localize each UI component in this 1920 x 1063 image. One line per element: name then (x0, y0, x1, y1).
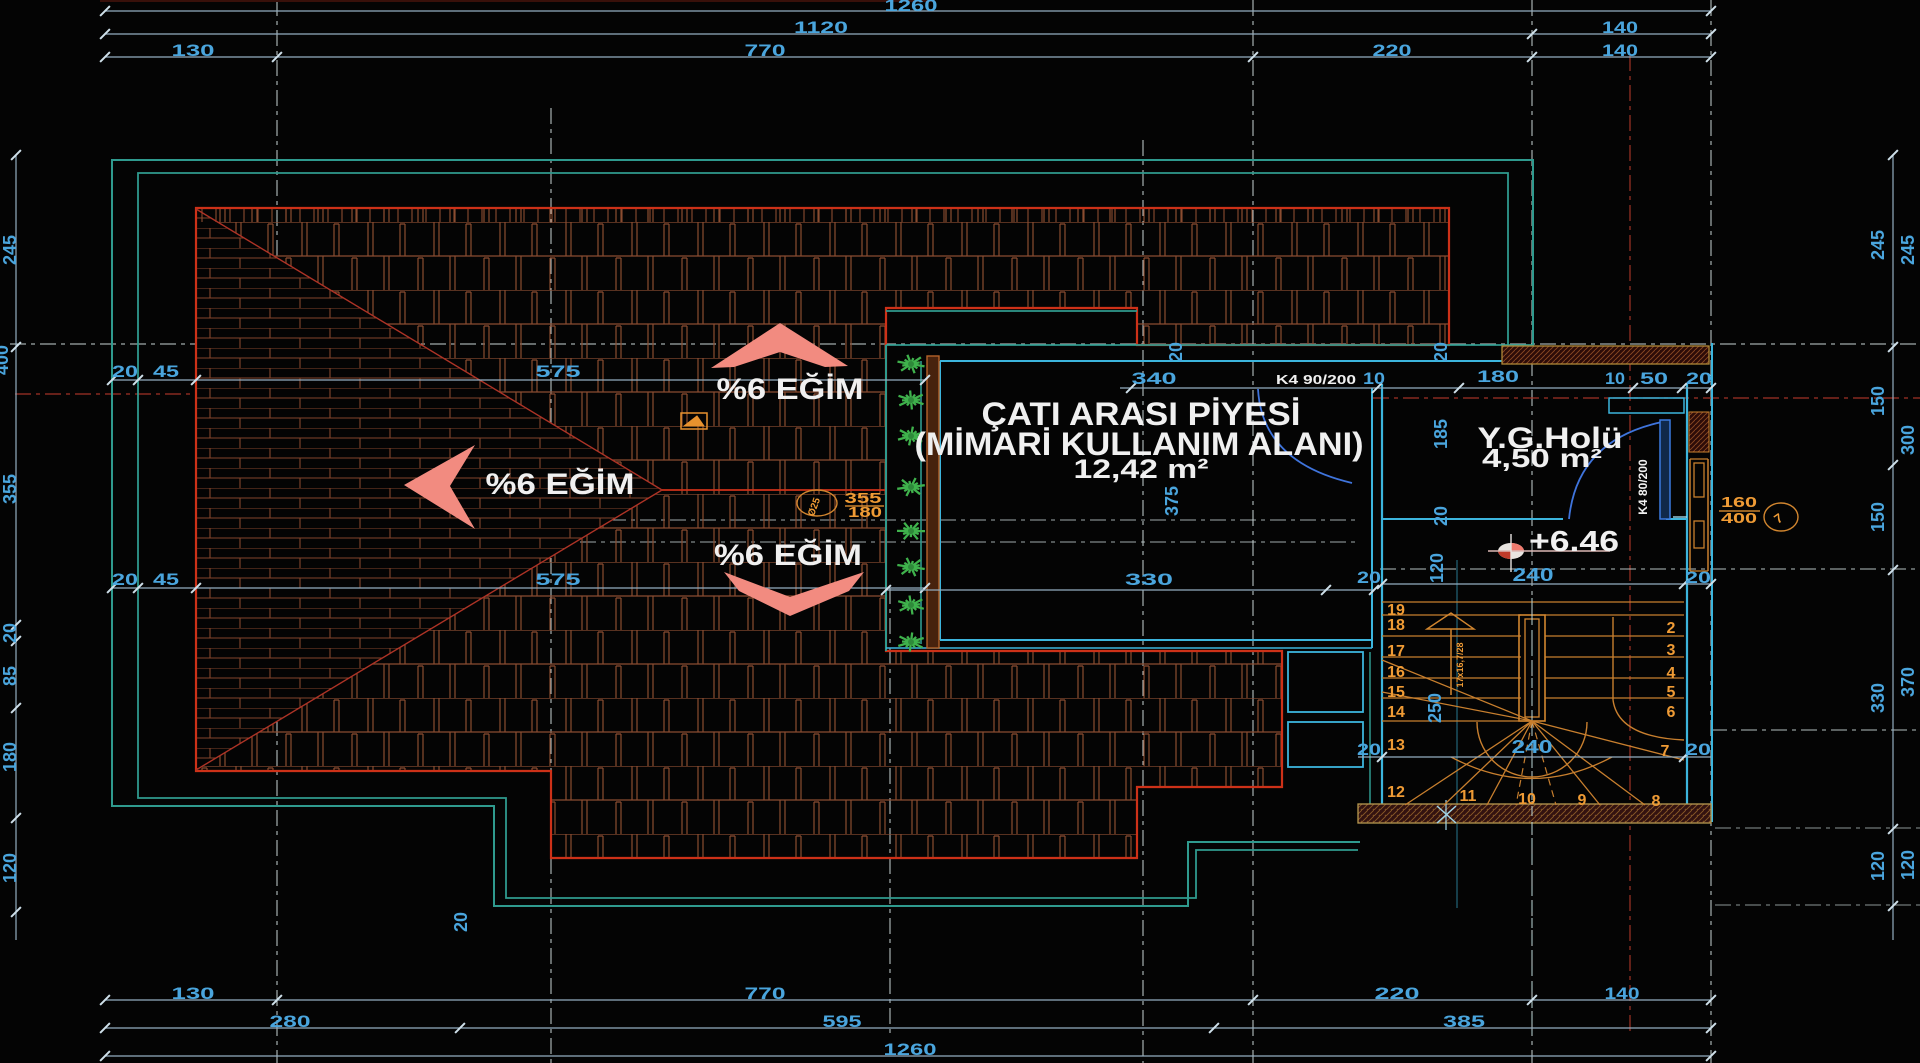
svg-text:20: 20 (112, 570, 138, 589)
svg-text:20: 20 (1431, 342, 1451, 362)
svg-text:240: 240 (1512, 737, 1553, 757)
svg-text:8: 8 (1652, 793, 1661, 810)
svg-text:770: 770 (745, 41, 786, 60)
svg-text:20: 20 (451, 912, 471, 932)
svg-text:K4 90/200: K4 90/200 (1276, 372, 1356, 387)
svg-text:20: 20 (0, 623, 20, 643)
svg-text:385: 385 (1443, 1012, 1485, 1031)
svg-text:140: 140 (1605, 984, 1640, 1003)
svg-text:85: 85 (0, 666, 20, 686)
svg-text:10: 10 (1605, 369, 1625, 388)
svg-text:10: 10 (1363, 369, 1385, 388)
svg-text:17x16,7/28: 17x16,7/28 (1455, 642, 1465, 687)
svg-text:4: 4 (1667, 665, 1676, 682)
svg-text:330: 330 (1125, 570, 1173, 589)
svg-text:355: 355 (0, 474, 20, 504)
svg-text:20: 20 (1166, 342, 1186, 362)
svg-text:12: 12 (1387, 784, 1405, 801)
svg-text:280: 280 (270, 1012, 311, 1031)
svg-text:17: 17 (1387, 643, 1405, 660)
svg-text:140: 140 (1602, 18, 1638, 37)
svg-text:375: 375 (1162, 486, 1182, 516)
svg-text:245: 245 (0, 235, 20, 265)
svg-text:9: 9 (1578, 792, 1587, 809)
svg-text:6: 6 (1667, 704, 1676, 721)
svg-text:%6 EĞİM: %6 EĞİM (714, 538, 862, 572)
svg-text:150: 150 (1868, 386, 1888, 416)
svg-text:185: 185 (1431, 419, 1451, 449)
svg-text:575: 575 (536, 570, 581, 589)
svg-text:20: 20 (1357, 740, 1381, 759)
svg-text:20: 20 (1686, 369, 1712, 388)
svg-text:240: 240 (1513, 565, 1554, 585)
svg-text:120: 120 (1427, 553, 1447, 583)
svg-text:16: 16 (1387, 664, 1405, 681)
svg-text:5: 5 (1667, 684, 1676, 701)
svg-text:20: 20 (1357, 568, 1381, 587)
svg-text:220: 220 (1375, 984, 1420, 1003)
svg-text:300: 300 (1898, 425, 1918, 455)
svg-text:%6 EĞİM: %6 EĞİM (486, 467, 635, 501)
svg-text:220: 220 (1373, 41, 1412, 60)
svg-text:13: 13 (1387, 737, 1405, 754)
svg-text:12,42 m²: 12,42 m² (1074, 454, 1209, 484)
svg-text:140: 140 (1602, 41, 1638, 60)
svg-text:20: 20 (112, 362, 138, 381)
svg-text:45: 45 (153, 570, 179, 589)
svg-text:4,50 m²: 4,50 m² (1482, 443, 1602, 473)
svg-text:20: 20 (1431, 506, 1451, 526)
svg-text:1260: 1260 (884, 1040, 937, 1059)
svg-text:340: 340 (1132, 369, 1177, 388)
svg-text:50: 50 (1640, 369, 1668, 388)
svg-text:K4 80/200: K4 80/200 (1636, 459, 1650, 515)
svg-text:2: 2 (1667, 620, 1676, 637)
svg-text:1260: 1260 (885, 0, 938, 15)
svg-text:15: 15 (1387, 684, 1405, 701)
svg-text:11: 11 (1460, 788, 1477, 805)
svg-text:575: 575 (536, 362, 581, 381)
svg-text:245: 245 (1868, 230, 1888, 260)
svg-text:45: 45 (153, 362, 179, 381)
svg-text:180: 180 (0, 742, 20, 772)
svg-text:14: 14 (1387, 704, 1405, 721)
svg-text:245: 245 (1898, 235, 1918, 265)
svg-text:130: 130 (172, 41, 215, 60)
svg-text:160: 160 (1721, 494, 1757, 511)
svg-text:+6.46: +6.46 (1529, 526, 1619, 558)
svg-text:595: 595 (823, 1012, 862, 1031)
svg-text:330: 330 (1868, 683, 1888, 713)
svg-text:%6 EĞİM: %6 EĞİM (717, 372, 864, 406)
svg-text:150: 150 (1868, 502, 1888, 532)
svg-text:20: 20 (1685, 740, 1711, 759)
svg-text:3: 3 (1667, 642, 1676, 659)
svg-text:120: 120 (1868, 851, 1888, 881)
svg-text:1120: 1120 (794, 18, 848, 37)
svg-text:250: 250 (1425, 693, 1445, 723)
svg-text:18: 18 (1387, 617, 1405, 634)
svg-text:400: 400 (0, 345, 12, 375)
svg-text:370: 370 (1898, 667, 1918, 697)
svg-text:130: 130 (172, 984, 215, 1003)
svg-text:400: 400 (1721, 510, 1757, 527)
svg-text:10: 10 (1518, 791, 1536, 808)
svg-text:120: 120 (0, 853, 20, 883)
svg-text:120: 120 (1898, 850, 1918, 880)
svg-text:180: 180 (1477, 367, 1519, 386)
svg-text:770: 770 (745, 984, 786, 1003)
